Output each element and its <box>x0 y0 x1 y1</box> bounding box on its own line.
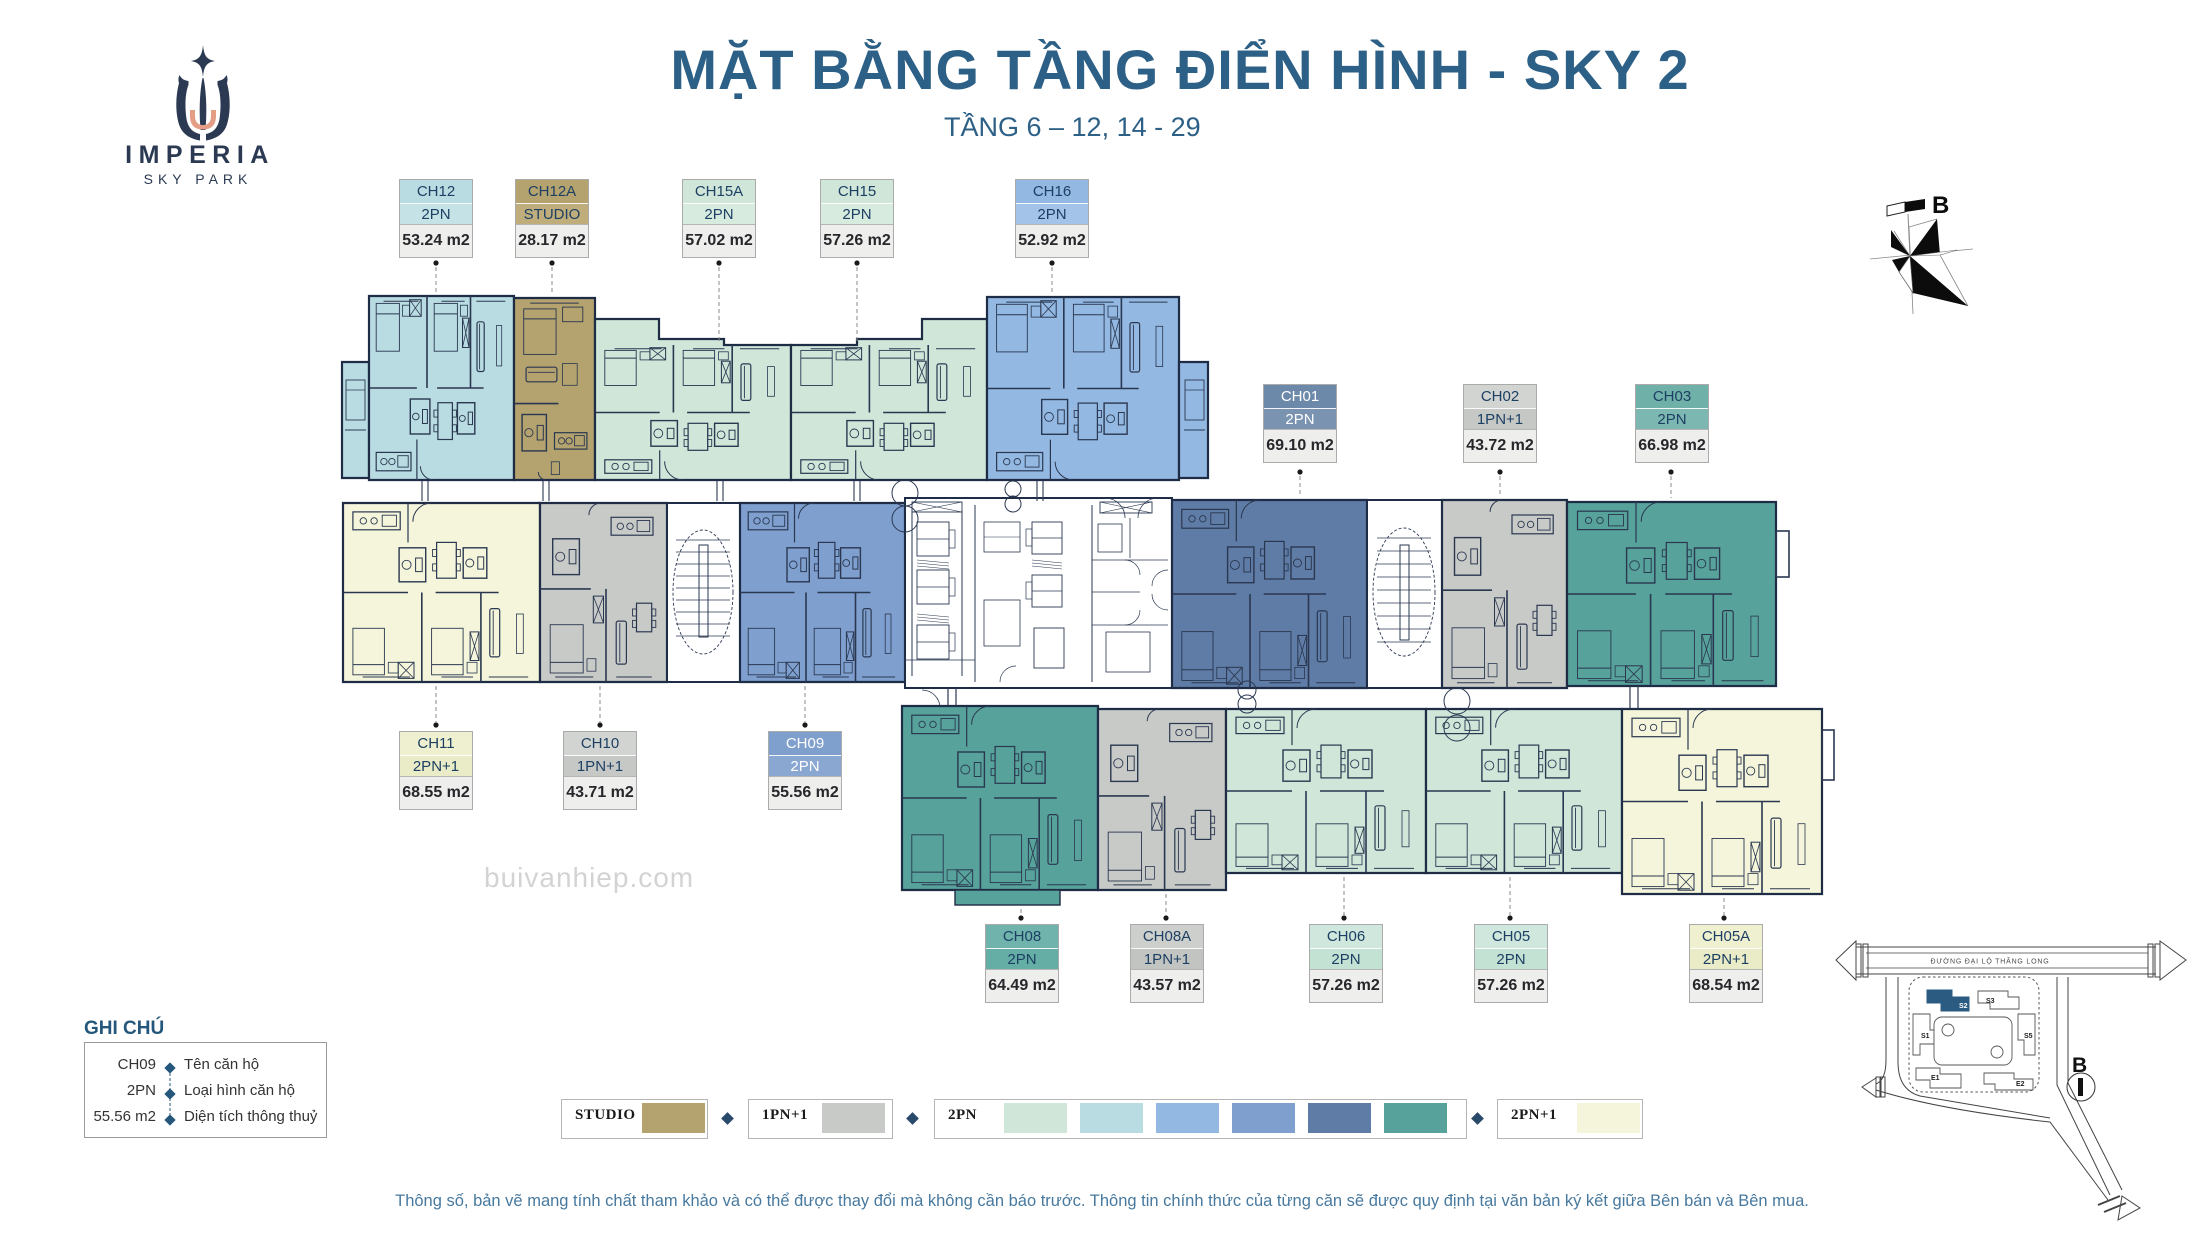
svg-text:E2: E2 <box>2016 1081 2025 1088</box>
svg-text:S2: S2 <box>1959 1003 1968 1010</box>
svg-text:S1: S1 <box>1921 1033 1930 1040</box>
svg-text:S5: S5 <box>2024 1033 2033 1040</box>
svg-text:B: B <box>1932 192 1949 219</box>
svg-text:ĐƯỜNG ĐẠI LỘ THĂNG LONG: ĐƯỜNG ĐẠI LỘ THĂNG LONG <box>1931 957 2050 966</box>
svg-text:S3: S3 <box>1986 998 1995 1005</box>
svg-text:E1: E1 <box>1931 1075 1940 1082</box>
svg-text:B: B <box>2072 1054 2087 1077</box>
